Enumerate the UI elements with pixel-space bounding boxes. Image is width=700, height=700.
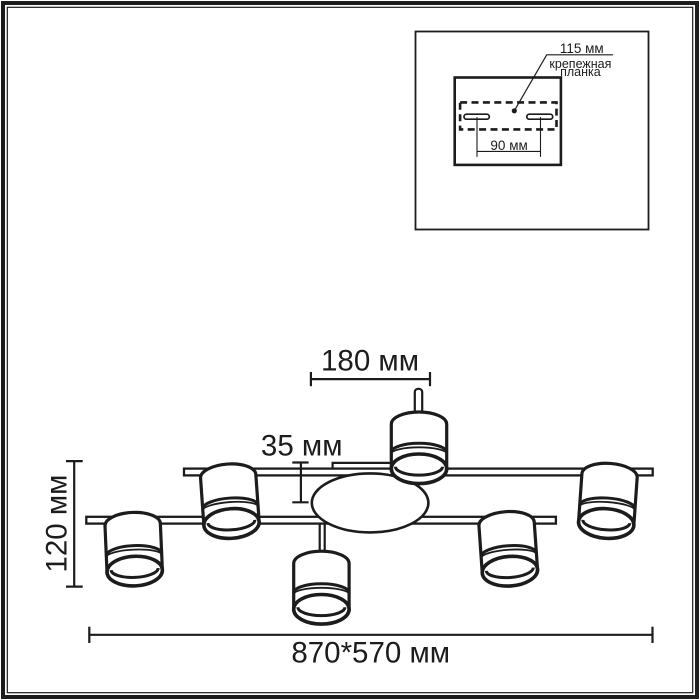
svg-text:180 мм: 180 мм	[321, 345, 419, 378]
svg-text:115 мм: 115 мм	[560, 41, 604, 56]
svg-text:планка: планка	[560, 65, 601, 79]
svg-text:870*570 мм: 870*570 мм	[291, 637, 450, 670]
svg-text:120 мм: 120 мм	[41, 475, 74, 573]
svg-text:90 мм: 90 мм	[490, 138, 527, 153]
svg-text:35 мм: 35 мм	[261, 429, 343, 462]
